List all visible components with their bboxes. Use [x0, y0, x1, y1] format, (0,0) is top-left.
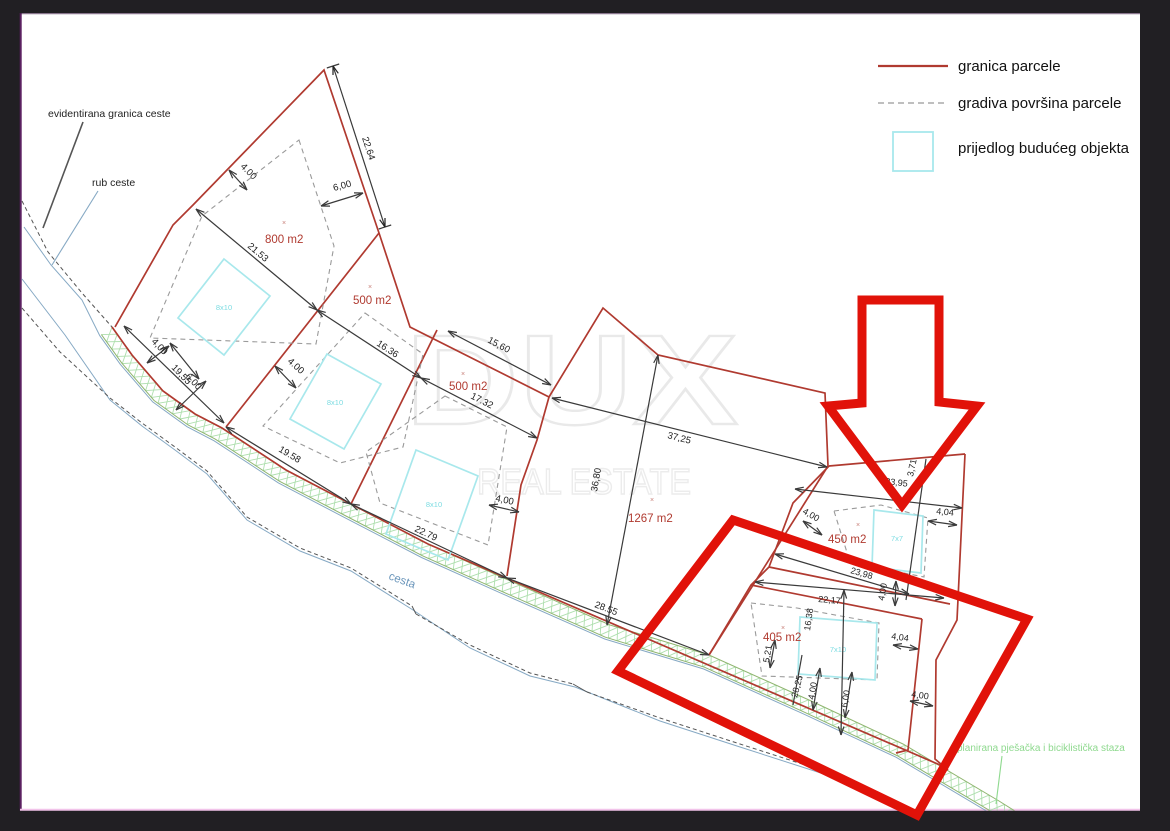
svg-text:405 m2: 405 m2 [763, 632, 801, 644]
svg-text:×: × [650, 497, 654, 504]
svg-text:8x10: 8x10 [327, 398, 343, 407]
svg-text:×: × [368, 284, 372, 291]
svg-text:800 m2: 800 m2 [265, 234, 303, 246]
svg-text:8x10: 8x10 [426, 500, 442, 509]
svg-text:×: × [856, 522, 860, 529]
svg-text:×: × [781, 625, 785, 632]
svg-text:1267 m2: 1267 m2 [628, 513, 673, 525]
svg-text:22,17: 22,17 [818, 594, 841, 606]
svg-text:450 m2: 450 m2 [828, 534, 866, 546]
svg-text:×: × [282, 220, 286, 227]
svg-text:×: × [461, 371, 465, 378]
svg-text:7x7: 7x7 [891, 534, 903, 543]
svg-text:evidentirana granica ceste: evidentirana granica ceste [48, 108, 171, 120]
svg-text:gradiva površina parcele: gradiva površina parcele [958, 95, 1121, 112]
svg-text:rub ceste: rub ceste [92, 177, 135, 189]
svg-text:prijedlog budućeg objekta: prijedlog budućeg objekta [958, 140, 1130, 157]
svg-text:granica parcele: granica parcele [958, 58, 1061, 75]
svg-text:8x10: 8x10 [216, 303, 232, 312]
svg-text:500 m2: 500 m2 [449, 381, 487, 393]
svg-text:500 m2: 500 m2 [353, 295, 391, 307]
svg-text:7x10: 7x10 [830, 645, 846, 654]
svg-text:planirana pješačka i biciklist: planirana pješačka i biciklistička staza [957, 743, 1125, 754]
svg-text:4,04: 4,04 [936, 506, 954, 518]
